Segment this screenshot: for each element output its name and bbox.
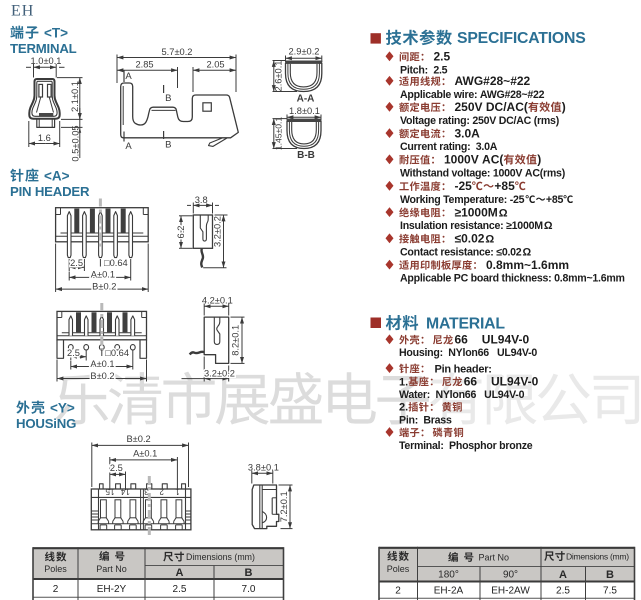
svg-text:Voltage rating: 250V DC/AC (rm: Voltage rating: 250V DC/AC (rms) — [400, 115, 559, 127]
svg-text:2.9±0.2: 2.9±0.2 — [289, 47, 320, 57]
svg-text:Withstand voltage: 1000V AC(rm: Withstand voltage: 1000V AC(rms) — [400, 167, 565, 179]
svg-text:Poles: Poles — [387, 564, 410, 574]
svg-text:TERMINAL: TERMINAL — [10, 41, 77, 56]
svg-text:4.2±0.1: 4.2±0.1 — [202, 295, 233, 305]
svg-text:): ) — [562, 100, 566, 114]
svg-text:Working Temperature: -25: Working Temperature: -25 — [400, 194, 525, 206]
svg-text:7.5: 7.5 — [603, 586, 617, 597]
svg-text:0.8mm~1.6mm: 0.8mm~1.6mm — [486, 258, 569, 272]
svg-text:<A>: <A> — [44, 169, 70, 184]
svg-text:B: B — [165, 93, 171, 104]
svg-text:EH-2AW: EH-2AW — [491, 586, 530, 597]
svg-text:90°: 90° — [503, 570, 518, 581]
svg-text:≤0.02: ≤0.02 — [455, 232, 485, 246]
svg-text:Ω: Ω — [485, 234, 494, 246]
svg-text:Terminal: Phosphor bronze: Terminal: Phosphor bronze — [399, 440, 533, 452]
svg-text:Pitch: 2.5: Pitch: 2.5 — [400, 64, 448, 76]
svg-text:Contact resistance: ≤0.02: Contact resistance: ≤0.02 — [400, 246, 522, 258]
svg-text:3.8: 3.8 — [195, 195, 208, 205]
svg-text:1.8±0.1: 1.8±0.1 — [289, 106, 320, 116]
svg-text:PIN HEADER: PIN HEADER — [10, 184, 90, 199]
svg-text:7.0: 7.0 — [242, 584, 256, 595]
svg-text:2: 2 — [53, 584, 59, 595]
svg-text:3.2±0.2: 3.2±0.2 — [213, 216, 223, 247]
svg-text:A: A — [176, 567, 184, 579]
svg-text:-25: -25 — [455, 179, 473, 193]
svg-text:HOUSiNG: HOUSiNG — [16, 416, 76, 431]
svg-text:A: A — [559, 569, 567, 581]
svg-text:B: B — [165, 140, 171, 151]
svg-text:1.0±0.1: 1.0±0.1 — [31, 56, 62, 66]
svg-text:B±0.2: B±0.2 — [90, 371, 114, 381]
svg-text:SPECIFICATIONS: SPECIFICATIONS — [457, 30, 586, 47]
svg-text:A±0.1: A±0.1 — [90, 359, 114, 369]
svg-text:Pin: Brass: Pin: Brass — [399, 415, 452, 427]
svg-text:UL94V-0: UL94V-0 — [482, 333, 530, 347]
svg-text:Dimensions (mm): Dimensions (mm) — [566, 552, 629, 562]
svg-text:2.5: 2.5 — [110, 463, 123, 473]
svg-text:EH-2Y: EH-2Y — [97, 584, 127, 595]
svg-text:A±0.1: A±0.1 — [91, 270, 115, 280]
svg-text:B±0.2: B±0.2 — [126, 434, 150, 444]
svg-text:B: B — [606, 569, 614, 581]
svg-text:MATERIAL: MATERIAL — [426, 315, 505, 332]
svg-text:Applicable PC board thickness:: Applicable PC board thickness: 0.8mm~1.6… — [400, 273, 625, 285]
svg-text:<Y>: <Y> — [50, 401, 75, 416]
svg-text:2.: 2. — [399, 402, 408, 414]
svg-text:Part No: Part No — [96, 564, 127, 574]
svg-text:): ) — [537, 153, 541, 167]
svg-text:180°: 180° — [438, 570, 459, 581]
svg-text:EH: EH — [11, 3, 34, 20]
svg-text:2.5: 2.5 — [434, 50, 451, 64]
svg-text:Poles: Poles — [44, 564, 67, 574]
svg-text:1.6: 1.6 — [38, 133, 51, 143]
svg-text:3.2±0.2: 3.2±0.2 — [204, 368, 235, 378]
svg-text:Dimensions (mm): Dimensions (mm) — [186, 552, 255, 562]
svg-text:B-B: B-B — [297, 150, 315, 161]
svg-text:A: A — [125, 141, 132, 152]
svg-text:15: 15 — [105, 487, 115, 496]
svg-text:14: 14 — [120, 487, 130, 496]
svg-text:66: 66 — [464, 374, 478, 388]
svg-text:1.45±0.1: 1.45±0.1 — [274, 117, 284, 151]
svg-text:Insulation resistance: ≥1000M: Insulation resistance: ≥1000M — [400, 220, 543, 232]
svg-text:□0.64: □0.64 — [104, 258, 128, 268]
svg-text:A±0.1: A±0.1 — [133, 448, 157, 458]
svg-text:≥1000M: ≥1000M — [455, 205, 498, 219]
svg-text:+85: +85 — [546, 194, 564, 206]
svg-text:A: A — [125, 71, 132, 82]
svg-text:2: 2 — [395, 586, 401, 597]
svg-text:1.: 1. — [399, 376, 408, 388]
svg-text:3.0A: 3.0A — [455, 126, 481, 140]
svg-text:2.5: 2.5 — [173, 584, 187, 595]
svg-text:<T>: <T> — [44, 26, 68, 41]
svg-text:UL94V-0: UL94V-0 — [491, 374, 539, 388]
svg-text:3.8±0.1: 3.8±0.1 — [248, 463, 279, 473]
svg-text:AWG#28~#22: AWG#28~#22 — [455, 74, 531, 88]
svg-text:0.5±0.05: 0.5±0.05 — [70, 125, 80, 161]
svg-text:Ω: Ω — [523, 246, 532, 258]
svg-text:+85: +85 — [494, 179, 515, 193]
svg-text:2.5: 2.5 — [67, 348, 80, 358]
svg-text:2.1±0.1: 2.1±0.1 — [70, 81, 80, 112]
svg-text:Ω: Ω — [499, 207, 508, 219]
svg-text:Housing: NYlon66 UL94V-0: Housing: NYlon66 UL94V-0 — [399, 347, 537, 359]
svg-text:Current rating: 3.0A: Current rating: 3.0A — [400, 141, 498, 153]
svg-text:8.2±0.1: 8.2±0.1 — [231, 325, 241, 356]
svg-text:B: B — [245, 567, 253, 579]
svg-text:A-A: A-A — [297, 94, 315, 105]
svg-text:□0.64: □0.64 — [105, 348, 129, 358]
svg-text:5.7±0.2: 5.7±0.2 — [162, 47, 193, 57]
svg-text:66: 66 — [455, 333, 469, 347]
svg-text:1: 1 — [175, 487, 180, 496]
svg-text:250V DC/AC(: 250V DC/AC( — [455, 100, 528, 114]
svg-text:Part No: Part No — [479, 553, 510, 563]
svg-text:6.2: 6.2 — [176, 226, 186, 239]
svg-text:2.5: 2.5 — [556, 586, 570, 597]
svg-text:1000V AC(: 1000V AC( — [444, 153, 503, 167]
svg-text:2.85: 2.85 — [135, 59, 153, 69]
svg-text:2.5: 2.5 — [70, 258, 83, 268]
svg-text:2: 2 — [159, 487, 164, 496]
svg-text:7.2±0.1: 7.2±0.1 — [279, 491, 289, 522]
svg-text:2.05: 2.05 — [206, 59, 224, 69]
svg-text:Ω: Ω — [544, 220, 553, 232]
svg-text:B±0.2: B±0.2 — [92, 281, 116, 291]
svg-text:2.6±0.1: 2.6±0.1 — [274, 61, 284, 92]
svg-text:EH-2A: EH-2A — [434, 586, 464, 597]
svg-text:Water: NYlon66 UL94V-0: Water: NYlon66 UL94V-0 — [399, 389, 525, 401]
